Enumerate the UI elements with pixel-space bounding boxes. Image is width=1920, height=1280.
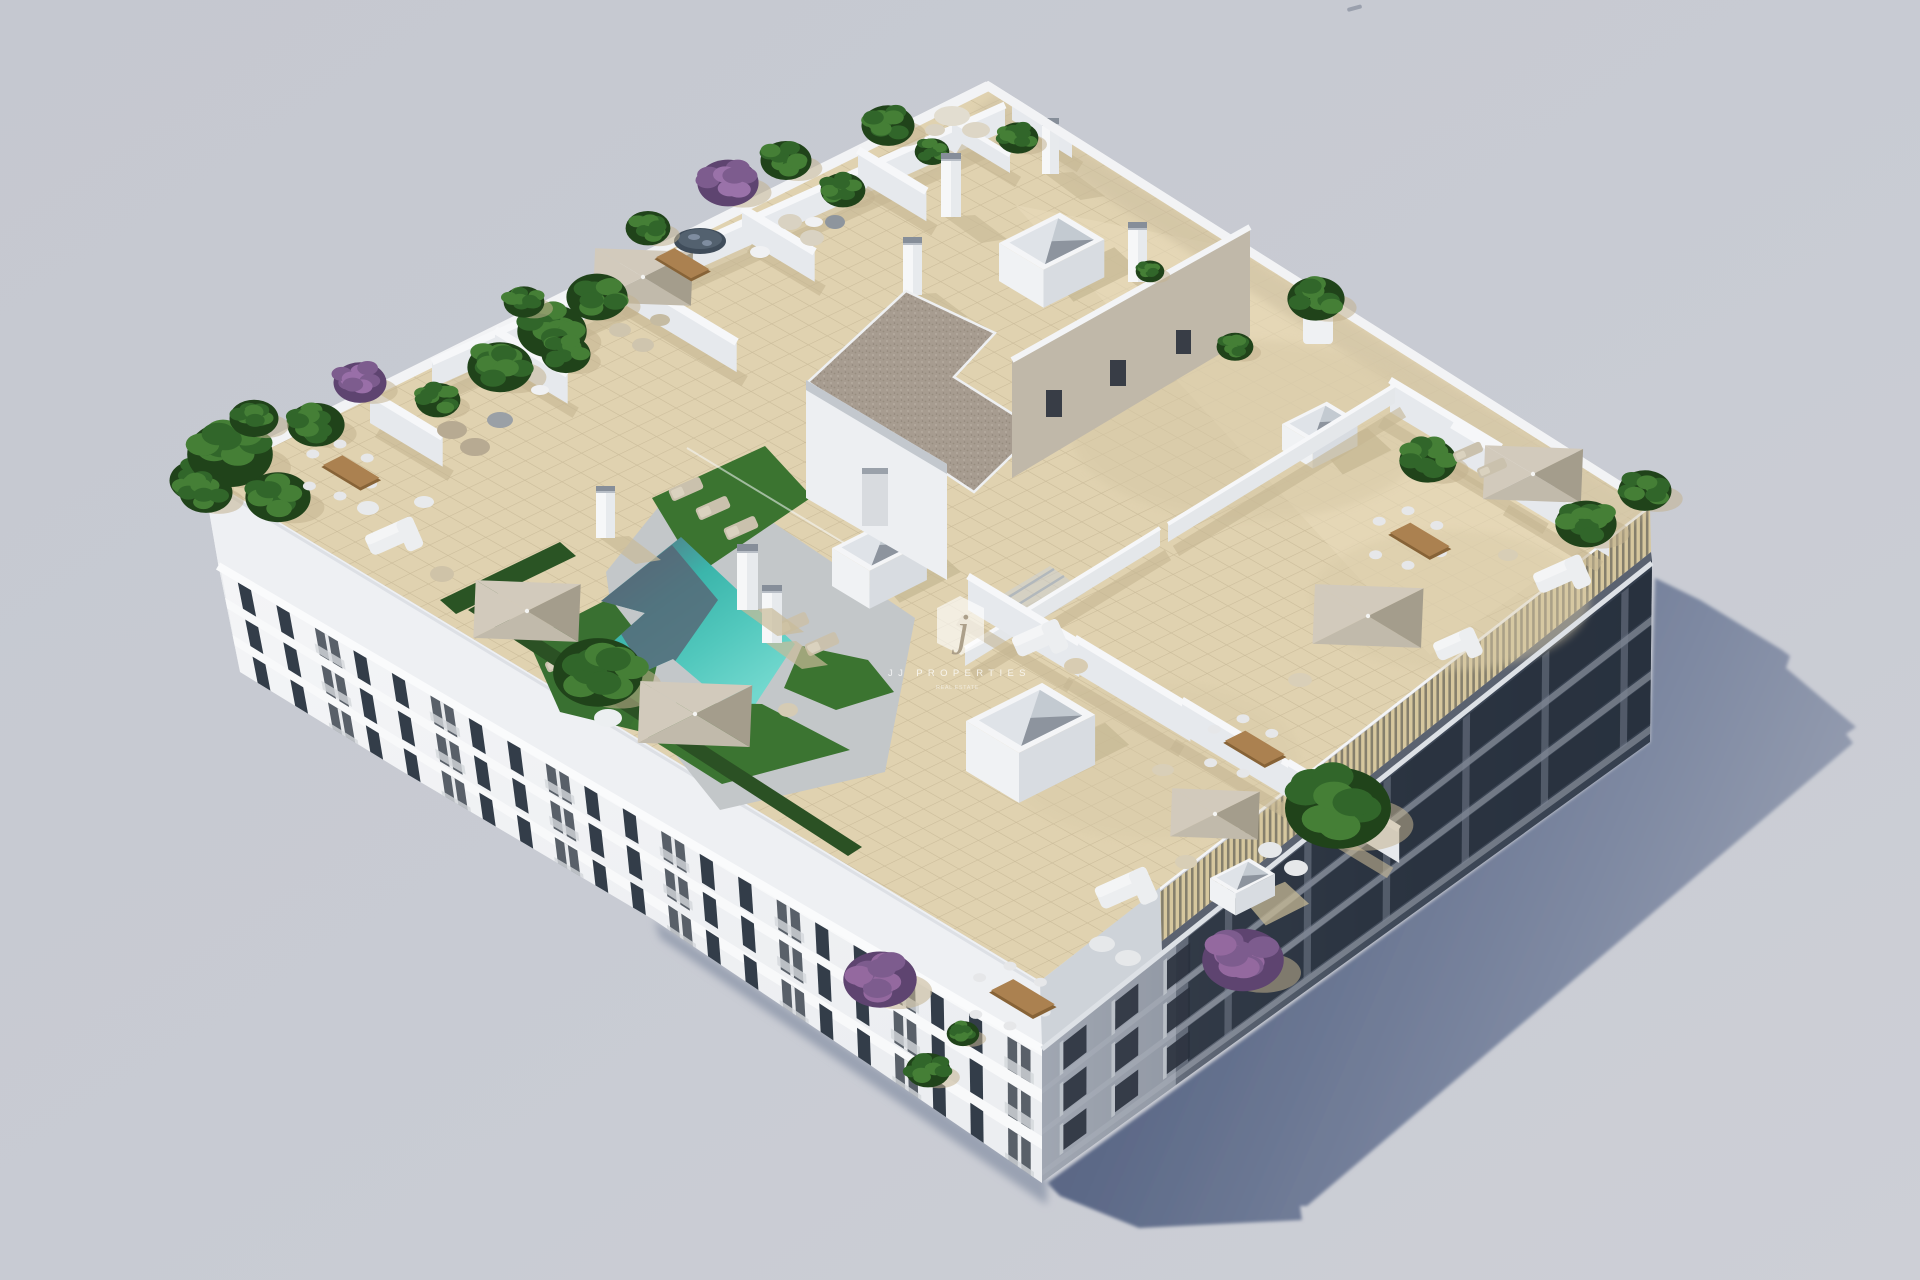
svg-text:REAL ESTATE: REAL ESTATE (936, 685, 980, 691)
svg-text:JJ PROPERTIES: JJ PROPERTIES (888, 668, 1028, 679)
